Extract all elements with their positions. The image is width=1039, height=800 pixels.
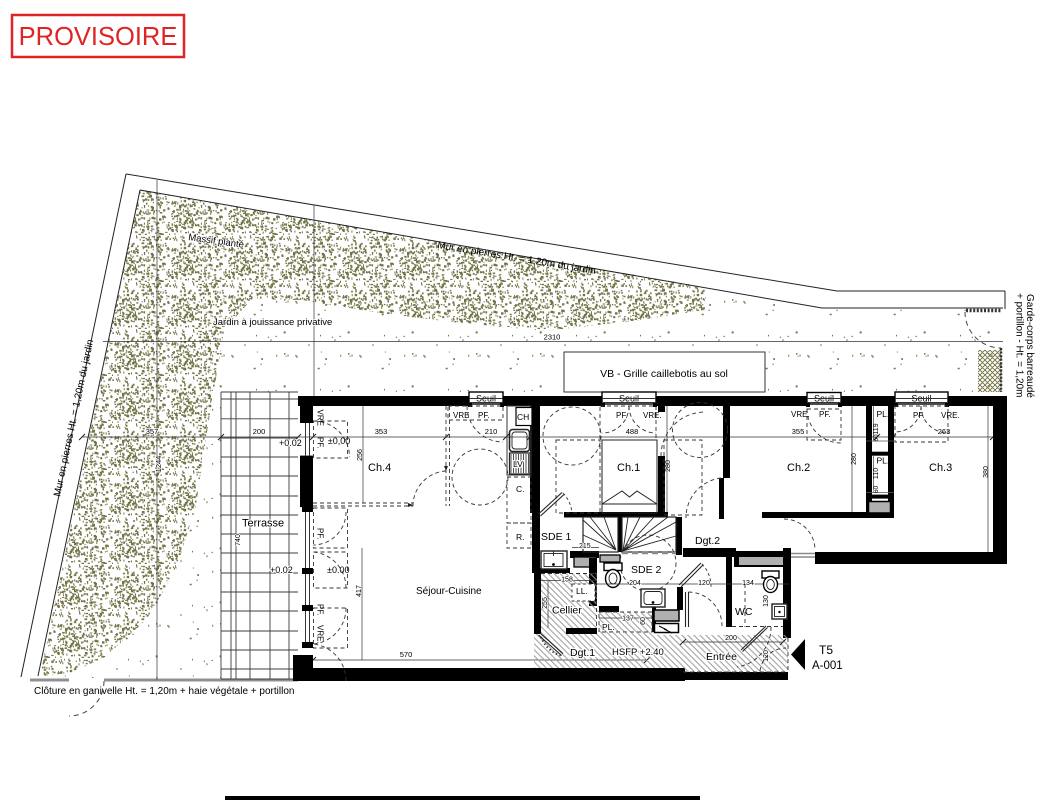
svg-text:Dgt.1: Dgt.1 — [570, 647, 595, 659]
svg-text:215: 215 — [579, 543, 591, 550]
svg-text:134: 134 — [742, 580, 754, 587]
svg-text:130: 130 — [763, 595, 770, 607]
svg-text:Jardin à jouissance privative: Jardin à jouissance privative — [213, 317, 332, 328]
svg-text:±0.00: ±0.00 — [327, 565, 349, 575]
svg-text:Ch.4: Ch.4 — [368, 462, 391, 474]
svg-text:PF.: PF. — [316, 437, 325, 449]
svg-text:380: 380 — [983, 466, 990, 478]
svg-text:VRE.: VRE. — [316, 625, 325, 644]
svg-text:Garde-corps barreaudé: Garde-corps barreaudé — [1024, 294, 1035, 398]
svg-text:Cellier: Cellier — [552, 605, 582, 617]
svg-text:Entrée: Entrée — [706, 651, 737, 663]
svg-text:PROVISOIRE: PROVISOIRE — [19, 23, 178, 51]
svg-text:158: 158 — [561, 577, 573, 584]
svg-text:Ch.1: Ch.1 — [617, 462, 640, 474]
svg-text:PL.: PL. — [877, 409, 890, 419]
svg-text:256: 256 — [357, 449, 364, 461]
svg-text:WC: WC — [735, 606, 753, 618]
svg-text:200: 200 — [253, 427, 266, 436]
svg-text:VRE: VRE — [316, 410, 325, 426]
svg-text:C.: C. — [516, 484, 525, 494]
svg-text:Ch.2: Ch.2 — [787, 462, 810, 474]
svg-text:1244: 1244 — [154, 456, 163, 473]
svg-text:VRE.: VRE. — [791, 410, 810, 419]
svg-text:VRE.: VRE. — [941, 411, 960, 420]
svg-text:280: 280 — [665, 460, 672, 472]
svg-text:LL.: LL. — [576, 586, 588, 596]
svg-text:417: 417 — [356, 585, 363, 597]
svg-text:120: 120 — [698, 580, 710, 587]
svg-text:60: 60 — [640, 617, 647, 625]
svg-text:357: 357 — [146, 427, 159, 436]
svg-text:Ch.3: Ch.3 — [929, 462, 952, 474]
svg-text:VRE.: VRE. — [643, 411, 662, 420]
svg-text:Clôture en ganivelle Ht. = 1,2: Clôture en ganivelle Ht. = 1,20m + haie … — [34, 686, 294, 697]
svg-text:740: 740 — [235, 534, 242, 546]
svg-text:CH: CH — [517, 412, 529, 422]
svg-text:+ portillon - Ht. = 1,20m: + portillon - Ht. = 1,20m — [1014, 293, 1025, 398]
svg-text:PL.: PL. — [602, 622, 615, 632]
svg-text:Séjour-Cuisine: Séjour-Cuisine — [416, 586, 482, 597]
svg-text:60: 60 — [873, 434, 880, 442]
svg-text:PF.: PF. — [316, 528, 325, 540]
svg-text:204: 204 — [629, 580, 641, 587]
svg-text:137: 137 — [622, 616, 634, 623]
svg-text:HSFP +2.40: HSFP +2.40 — [612, 647, 664, 658]
svg-text:119: 119 — [873, 423, 880, 434]
svg-text:T5: T5 — [819, 643, 833, 657]
svg-text:PF.: PF. — [316, 604, 325, 616]
svg-text:255: 255 — [542, 597, 549, 609]
svg-text:353: 353 — [375, 427, 388, 436]
svg-text:VB - Grille caillebotis au sol: VB - Grille caillebotis au sol — [600, 368, 728, 380]
svg-text:570: 570 — [400, 650, 413, 659]
svg-text:2310: 2310 — [544, 333, 561, 342]
svg-text:60: 60 — [873, 486, 880, 494]
svg-text:Dgt.2: Dgt.2 — [695, 535, 720, 547]
svg-text:210: 210 — [485, 427, 498, 436]
svg-text:355: 355 — [792, 427, 805, 436]
svg-text:VRE: VRE — [453, 411, 469, 420]
svg-text:PF.: PF. — [478, 411, 490, 420]
svg-text:+0.02: +0.02 — [270, 565, 293, 575]
svg-text:A-001: A-001 — [812, 660, 843, 672]
svg-text:PF.: PF. — [616, 411, 628, 420]
svg-text:SDE 1: SDE 1 — [541, 531, 572, 543]
svg-text:110: 110 — [873, 468, 880, 479]
svg-text:LV: LV — [513, 459, 523, 469]
svg-text:SDE 2: SDE 2 — [631, 564, 662, 576]
svg-text:PL.: PL. — [877, 456, 890, 466]
svg-text:280: 280 — [851, 453, 858, 465]
svg-text:R.: R. — [516, 532, 525, 542]
svg-text:Terrasse: Terrasse — [242, 518, 284, 530]
svg-text:PF.: PF. — [913, 411, 925, 420]
svg-text:200: 200 — [725, 635, 737, 642]
svg-text:+0.02: +0.02 — [279, 438, 302, 448]
svg-text:488: 488 — [626, 427, 639, 436]
svg-text:PF.: PF. — [819, 410, 831, 419]
